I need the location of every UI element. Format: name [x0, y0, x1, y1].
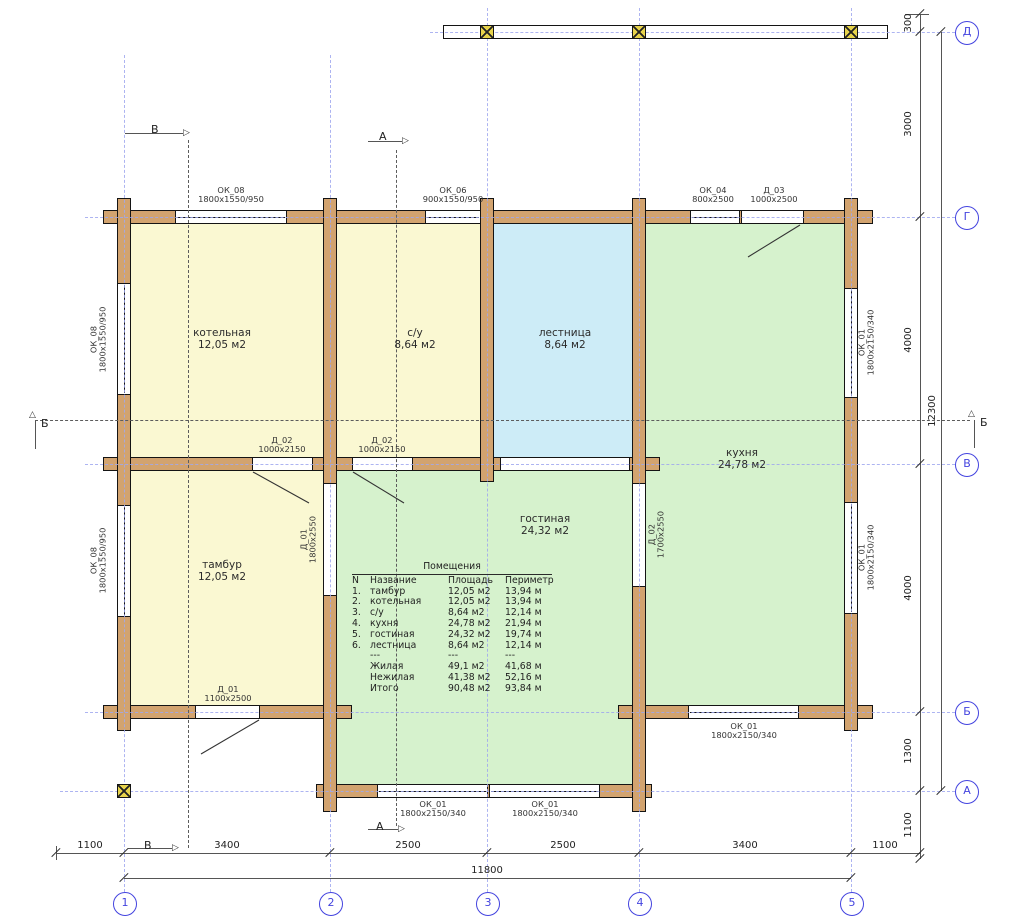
label-ok06-top: ОК_06900х1550/950 [398, 186, 508, 205]
section-arrow-icon: ▷ [398, 824, 405, 834]
section-arrow-icon: ▷ [172, 843, 179, 853]
dim-bottom-4: 3400 [715, 840, 775, 852]
dim-right-5: 1100 [903, 795, 915, 855]
label-ok01-right-upper: ОК_011800х2150/340 [858, 295, 877, 391]
label-ok08-left-lower: ОК_081800х1550/950 [90, 513, 109, 609]
axis-bubble-g: Г [955, 206, 979, 230]
room-label-kotelnaya: котельная12,05 м2 [157, 328, 287, 351]
label-d02-axis4: Д_021700х2550 [648, 487, 667, 583]
label-ok08-left-upper: ОК_081800х1550/950 [90, 292, 109, 388]
label-ok01-b-right: ОК_011800х2150/340 [689, 722, 799, 741]
section-line-a [396, 150, 397, 826]
dim-line-bottom-1 [56, 853, 920, 854]
dim-right-0: 300 [903, 0, 915, 53]
section-marker-a-bottom-label: А [376, 821, 384, 833]
room-label-gostinaya: гостиная24,32 м2 [480, 514, 610, 537]
dim-right-2: 4000 [903, 310, 915, 370]
dim-right-4: 1300 [903, 721, 915, 781]
section-marker-a-top-label: А [379, 131, 387, 143]
label-d01-bottom: Д_011100х2500 [173, 685, 283, 704]
dim-bottom-0: 1100 [60, 840, 120, 852]
label-d03-top: Д_031000х2500 [719, 186, 829, 205]
section-line-v [188, 140, 189, 848]
label-ok01-right-lower: ОК_011800х2150/340 [858, 510, 877, 606]
axis-bubble-2: 2 [319, 892, 343, 916]
rooms-table: Помещения N Название Площадь Периметр 1.… [352, 562, 552, 695]
label-ok01-a1: ОК_011800х2150/340 [378, 800, 488, 819]
dim-bottom-3: 2500 [533, 840, 593, 852]
section-line-b [35, 420, 970, 421]
section-marker-b-left-stem [35, 421, 36, 449]
rooms-table-header: N Название Площадь Периметр [352, 576, 552, 587]
dim-right-3: 4000 [903, 558, 915, 618]
dim-bottom-2: 2500 [378, 840, 438, 852]
dim-line-bottom-2 [124, 878, 851, 879]
axis-bubble-3: 3 [476, 892, 500, 916]
section-arrow-icon: ▷ [183, 128, 190, 138]
axis-bubble-a: А [955, 780, 979, 804]
section-marker-b-right-label: Б [980, 417, 988, 429]
section-arrow-icon: ▷ [402, 136, 409, 146]
door-swing-lines [0, 0, 1024, 924]
axis-bubble-b: Б [955, 701, 979, 725]
section-marker-b-left-label: Б [41, 418, 49, 430]
table-total-row: Итого 90,48 м293,84 м [352, 684, 552, 695]
axis-bubble-5: 5 [840, 892, 864, 916]
dim-line-right-1 [920, 14, 921, 859]
axis-bubble-4: 4 [628, 892, 652, 916]
floor-plan-canvas: В ▷ А ▷ В ▷ А ▷ △ Б △ Б 1100 3400 2500 2… [0, 0, 1024, 924]
label-d02-2: Д_021000х2150 [327, 436, 437, 455]
label-ok08-top: ОК_081800х1550/950 [176, 186, 286, 205]
label-ok01-a2: ОК_011800х2150/340 [490, 800, 600, 819]
axis-bubble-d: Д [955, 21, 979, 45]
section-arrow-icon: △ [29, 410, 36, 420]
label-d01-axis2: Д_011800х2550 [300, 492, 319, 588]
dim-line-right-2 [941, 32, 942, 791]
dim-right-total: 12300 [927, 381, 939, 441]
room-label-su: с/у8,64 м2 [350, 328, 480, 351]
dim-bottom-total: 11800 [457, 865, 517, 877]
label-d02-1: Д_021000х2150 [227, 436, 337, 455]
dim-bottom-1: 3400 [197, 840, 257, 852]
section-marker-v-top-label: В [151, 124, 159, 136]
section-marker-b-right-stem [974, 420, 975, 448]
table-row: 5.гостиная 24,32 м219,74 м [352, 630, 552, 641]
dim-right-1: 3000 [903, 94, 915, 154]
axis-bubble-1: 1 [113, 892, 137, 916]
section-arrow-icon: △ [968, 409, 975, 419]
rooms-table-title: Помещения [352, 562, 552, 575]
axis-bubble-v: В [955, 453, 979, 477]
section-marker-v-bottom-label: В [144, 840, 152, 852]
room-label-kuhnya: кухня24,78 м2 [677, 448, 807, 471]
room-label-tambur: тамбур12,05 м2 [157, 560, 287, 583]
room-label-lestnitsa: лестница8,64 м2 [500, 328, 630, 351]
